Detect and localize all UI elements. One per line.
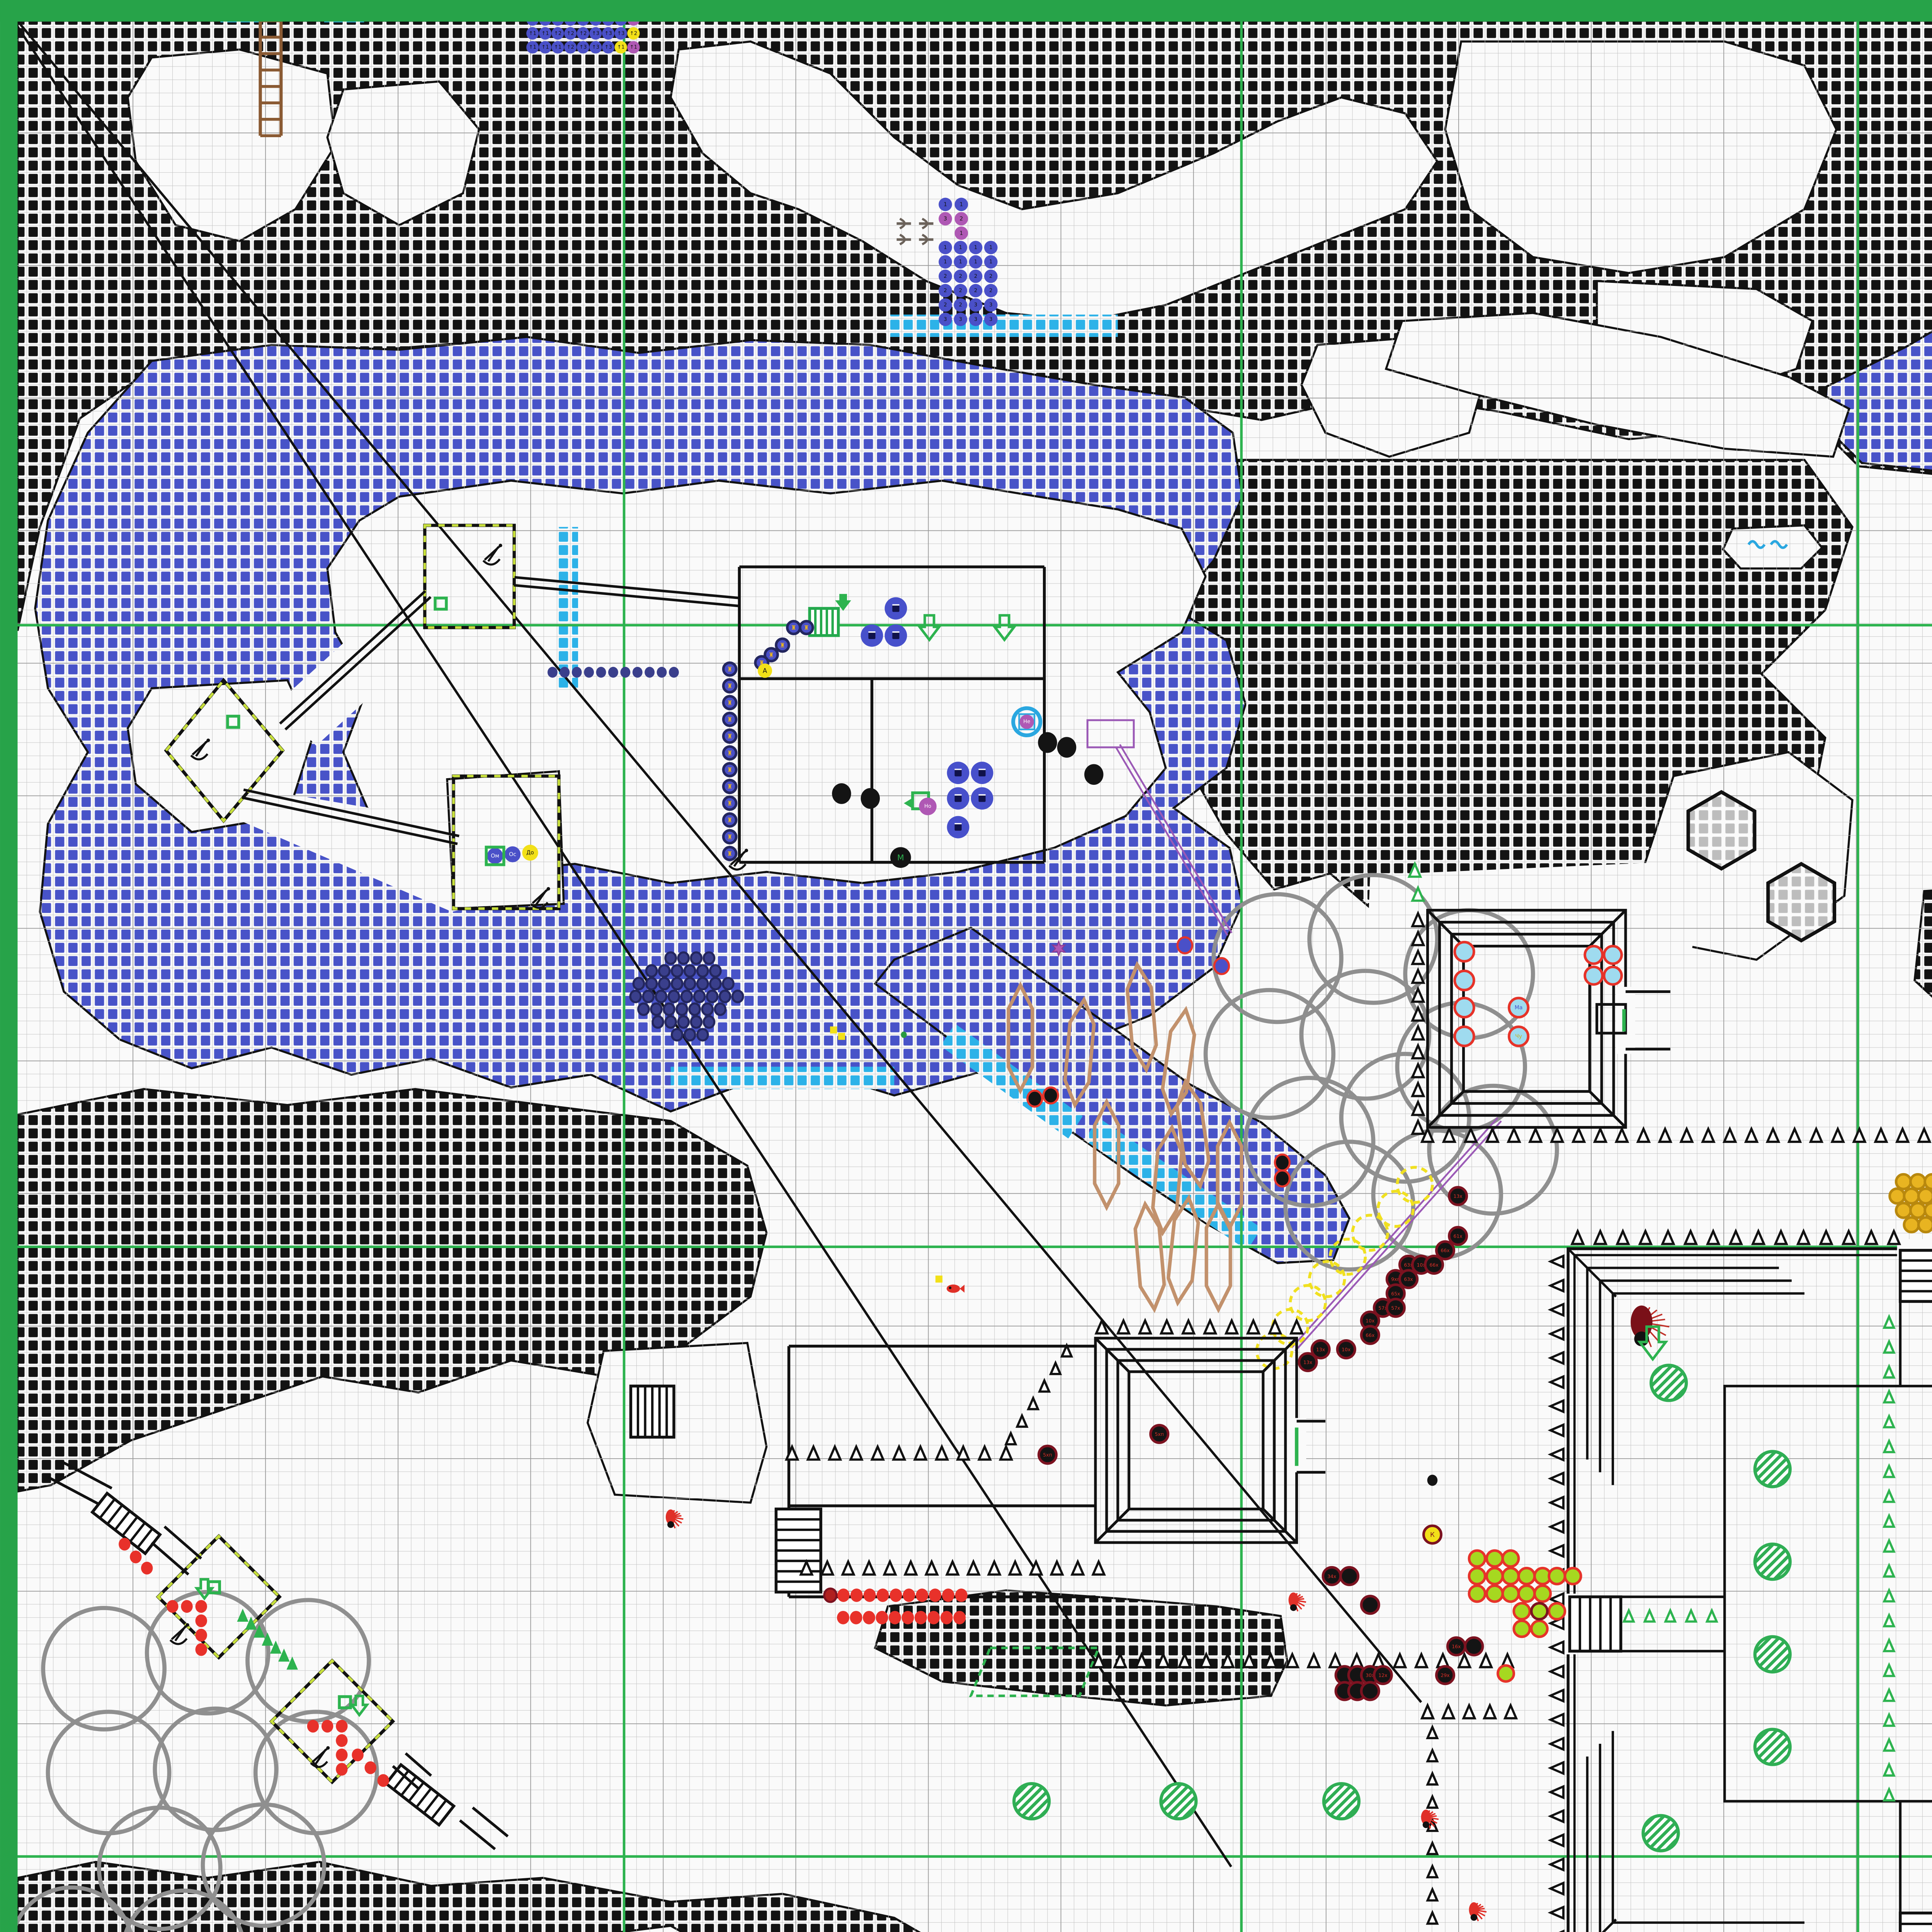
svg-text:3: 3 bbox=[989, 302, 992, 308]
token-K: К bbox=[1423, 1526, 1441, 1543]
svg-text:2: 2 bbox=[944, 274, 947, 279]
svg-text:♜: ♜ bbox=[769, 651, 774, 658]
svg-text:Ом: Ом bbox=[491, 853, 499, 859]
svg-text:♜: ♜ bbox=[727, 733, 733, 740]
svg-text:↑1: ↑1 bbox=[541, 31, 549, 36]
svg-text:↑2: ↑2 bbox=[579, 31, 587, 36]
svg-text:1: 1 bbox=[944, 259, 947, 265]
token-A: А bbox=[758, 663, 772, 678]
svg-text:2: 2 bbox=[959, 216, 963, 222]
svg-text:1: 1 bbox=[959, 259, 962, 265]
svg-text:♜: ♜ bbox=[727, 699, 733, 706]
svg-text:2: 2 bbox=[959, 302, 962, 308]
svg-text:♜: ♜ bbox=[727, 783, 733, 790]
stairs-island bbox=[810, 609, 838, 636]
gate-ladder-n bbox=[1900, 1250, 1932, 1301]
svg-text:66х: 66х bbox=[1366, 1332, 1374, 1338]
token-M: М bbox=[890, 847, 911, 868]
bridge-west-2 bbox=[776, 1509, 821, 1592]
svg-text:↑1: ↑1 bbox=[529, 44, 537, 50]
fortress-map: ↑1↑2↑1↑2↑2↑2↑3↑3↑3↑1↑1↑1↑2↑2↑3↑3↑3↑2↑1↑1… bbox=[0, 0, 1932, 1932]
svg-text:66х: 66х bbox=[1430, 1262, 1439, 1268]
svg-text:М: М bbox=[897, 853, 904, 862]
svg-text:13х: 13х bbox=[1316, 1347, 1325, 1352]
svg-text:1: 1 bbox=[974, 245, 977, 250]
svg-text:↑3: ↑3 bbox=[617, 31, 625, 36]
svg-text:1: 1 bbox=[959, 201, 963, 207]
chartreuse-dark-one bbox=[1531, 1603, 1547, 1619]
page: { "map":{"w":1568,"h":1556.4,"scale":4.1… bbox=[0, 0, 1932, 1932]
svg-text:↑2: ↑2 bbox=[630, 31, 638, 36]
svg-text:♜: ♜ bbox=[780, 641, 786, 649]
svg-text:↑3: ↑3 bbox=[604, 31, 612, 36]
svg-text:↑3: ↑3 bbox=[604, 44, 612, 50]
svg-text:61х: 61х bbox=[1454, 1233, 1463, 1239]
svg-text:↑1: ↑1 bbox=[529, 31, 537, 36]
svg-text:12х: 12х bbox=[1378, 1672, 1387, 1678]
svg-text:57х: 57х bbox=[1391, 1305, 1400, 1311]
red-row-1-lead bbox=[824, 1588, 837, 1602]
svg-text:34х: 34х bbox=[1327, 1573, 1336, 1579]
svg-text:♜: ♜ bbox=[727, 665, 733, 673]
svg-text:2: 2 bbox=[974, 274, 977, 279]
svg-text:Чу: Чу bbox=[1515, 1033, 1522, 1039]
triangles-col-pit bbox=[1428, 1727, 1437, 1932]
gate-ladder-s bbox=[1900, 1913, 1932, 1932]
svg-text:Ма: Ма bbox=[1515, 1005, 1523, 1011]
svg-text:♜: ♜ bbox=[804, 624, 810, 631]
room-token-do: До bbox=[522, 845, 538, 861]
svg-text:♜: ♜ bbox=[727, 833, 733, 840]
svg-text:1: 1 bbox=[944, 245, 947, 250]
svg-text:♜: ♜ bbox=[791, 624, 797, 631]
svg-text:3: 3 bbox=[944, 316, 947, 322]
svg-text:1: 1 bbox=[959, 230, 963, 236]
svg-text:Не: Не bbox=[1023, 719, 1030, 724]
svg-text:↑1: ↑1 bbox=[617, 44, 625, 50]
svg-text:1: 1 bbox=[974, 259, 977, 265]
svg-text:2: 2 bbox=[959, 288, 962, 294]
svg-text:5хп: 5хп bbox=[1043, 1452, 1052, 1458]
svg-text:1: 1 bbox=[959, 245, 962, 250]
svg-text:К: К bbox=[1430, 1531, 1435, 1538]
svg-text:♜: ♜ bbox=[727, 766, 733, 774]
svg-text:5хп: 5хп bbox=[1155, 1431, 1164, 1437]
svg-text:Ос: Ос bbox=[509, 851, 516, 857]
svg-text:66х: 66х bbox=[1441, 1248, 1450, 1253]
svg-text:♜: ♜ bbox=[727, 749, 733, 757]
svg-text:Но: Но bbox=[924, 803, 931, 809]
svg-text:↑3: ↑3 bbox=[579, 44, 587, 50]
svg-text:1: 1 bbox=[944, 201, 947, 207]
svg-text:↑1: ↑1 bbox=[541, 44, 549, 50]
svg-text:↑2: ↑2 bbox=[554, 31, 562, 36]
svg-text:3: 3 bbox=[944, 216, 947, 222]
map-canvas: ↑1↑2↑1↑2↑2↑2↑3↑3↑3↑1↑1↑1↑2↑2↑3↑3↑3↑2↑1↑1… bbox=[0, 0, 1932, 1932]
svg-text:16х: 16х bbox=[1452, 1644, 1461, 1650]
svg-text:До: До bbox=[526, 850, 534, 856]
svg-text:↑1: ↑1 bbox=[630, 44, 638, 50]
svg-text:3: 3 bbox=[974, 302, 977, 308]
navy-dot-row bbox=[548, 667, 679, 678]
svg-text:2: 2 bbox=[944, 288, 947, 294]
svg-text:29х: 29х bbox=[1441, 1672, 1450, 1678]
svg-text:♜: ♜ bbox=[727, 850, 733, 857]
svg-text:2: 2 bbox=[989, 288, 992, 294]
fort-north-cyan-token-chu: Чу bbox=[1509, 1027, 1528, 1046]
svg-text:3: 3 bbox=[989, 316, 992, 322]
svg-text:А: А bbox=[763, 667, 767, 675]
svg-text:10х: 10х bbox=[1366, 1318, 1374, 1324]
svg-text:♜: ♜ bbox=[727, 800, 733, 807]
svg-text:↑1: ↑1 bbox=[554, 44, 562, 50]
svg-text:13х: 13х bbox=[1303, 1359, 1312, 1365]
svg-text:↑2: ↑2 bbox=[566, 31, 574, 36]
svg-text:65х: 65х bbox=[1391, 1291, 1400, 1296]
svg-text:2: 2 bbox=[974, 288, 977, 294]
svg-text:↑3: ↑3 bbox=[592, 44, 600, 50]
svg-text:1: 1 bbox=[989, 259, 992, 265]
svg-text:1: 1 bbox=[989, 245, 992, 250]
svg-text:↑2: ↑2 bbox=[566, 44, 574, 50]
fortress-triangles-top-a bbox=[1572, 1231, 1900, 1244]
svg-text:♜: ♜ bbox=[727, 682, 733, 690]
svg-text:3: 3 bbox=[959, 316, 962, 322]
svg-text:10х: 10х bbox=[1342, 1347, 1350, 1352]
gate-ladder-w bbox=[1570, 1597, 1621, 1651]
svg-text:2: 2 bbox=[989, 274, 992, 279]
svg-text:♜: ♜ bbox=[727, 716, 733, 723]
triangles-row-982 bbox=[801, 1562, 1104, 1575]
svg-text:2: 2 bbox=[959, 274, 962, 279]
svg-text:♜: ♜ bbox=[727, 816, 733, 824]
bridge-west-1 bbox=[631, 1386, 674, 1437]
svg-text:13х: 13х bbox=[1454, 1193, 1463, 1199]
svg-text:63х: 63х bbox=[1404, 1276, 1413, 1282]
svg-text:↑3: ↑3 bbox=[592, 31, 600, 36]
svg-text:2: 2 bbox=[944, 302, 947, 308]
svg-text:3: 3 bbox=[974, 316, 977, 322]
micro-green-dot bbox=[901, 1032, 906, 1038]
